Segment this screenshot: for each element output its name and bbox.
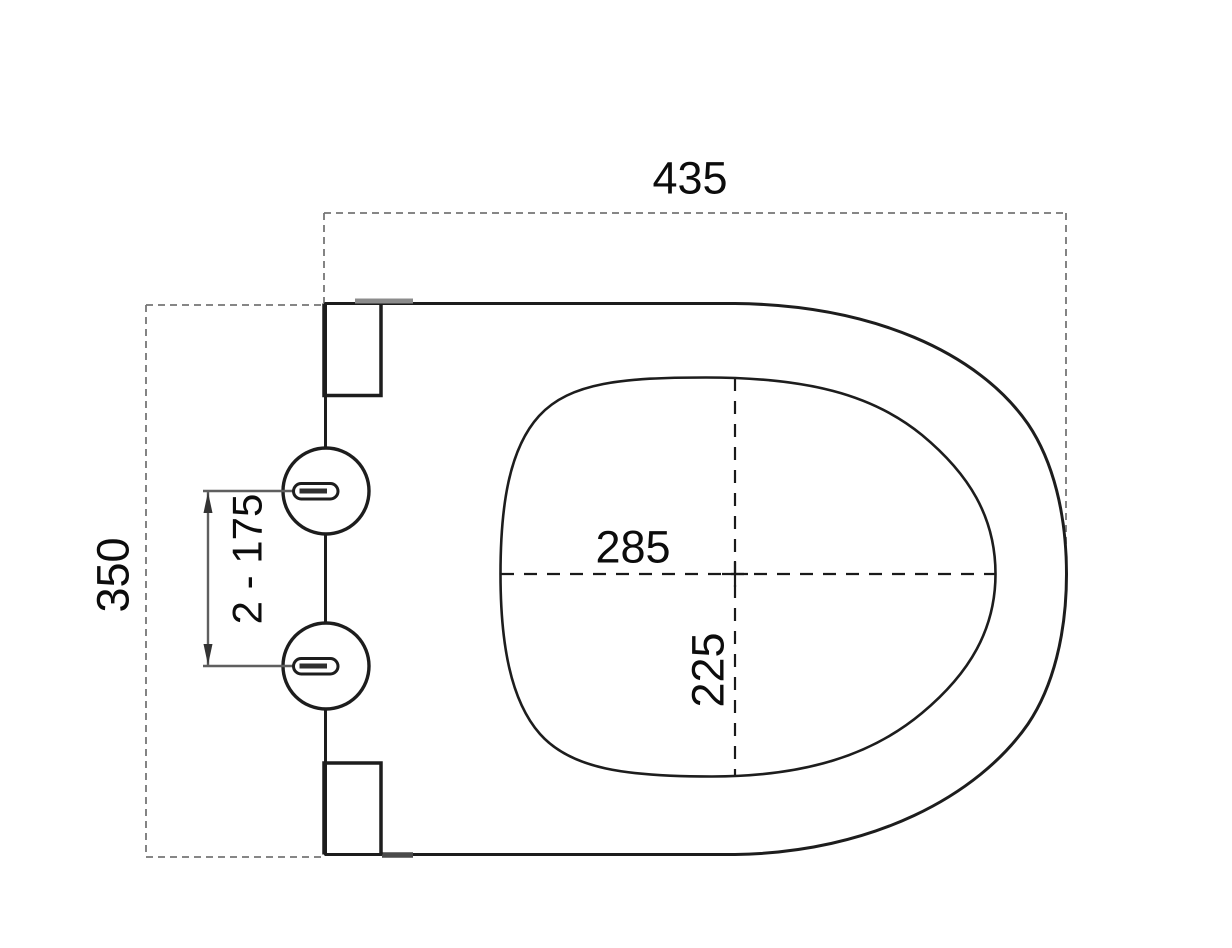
inner-width-label: 285 <box>595 522 670 573</box>
overall-width-extent <box>324 213 1066 556</box>
arrow-down-icon <box>204 644 213 665</box>
hinge-slot-bottom <box>294 659 339 675</box>
arrow-up-icon <box>204 492 213 513</box>
seat-outer-outline <box>325 304 1067 855</box>
overall-depth-label: 350 <box>88 537 139 612</box>
hinge-bracket-bottom <box>324 763 381 855</box>
hinge-slot-top <box>294 484 339 500</box>
inner-depth-label: 225 <box>683 632 734 707</box>
hinge-bracket-top <box>324 304 381 396</box>
opening-centerlines <box>501 378 995 776</box>
hinge-spacing-label: 2 - 175 <box>224 494 271 625</box>
drawing-canvas: 435 350 2 - 175 285 225 <box>0 0 1232 948</box>
toilet-seat-dimension-drawing: 435 350 2 - 175 285 225 <box>0 0 1232 948</box>
overall-width-label: 435 <box>652 153 727 204</box>
seat-inner-opening-outline <box>501 378 996 777</box>
